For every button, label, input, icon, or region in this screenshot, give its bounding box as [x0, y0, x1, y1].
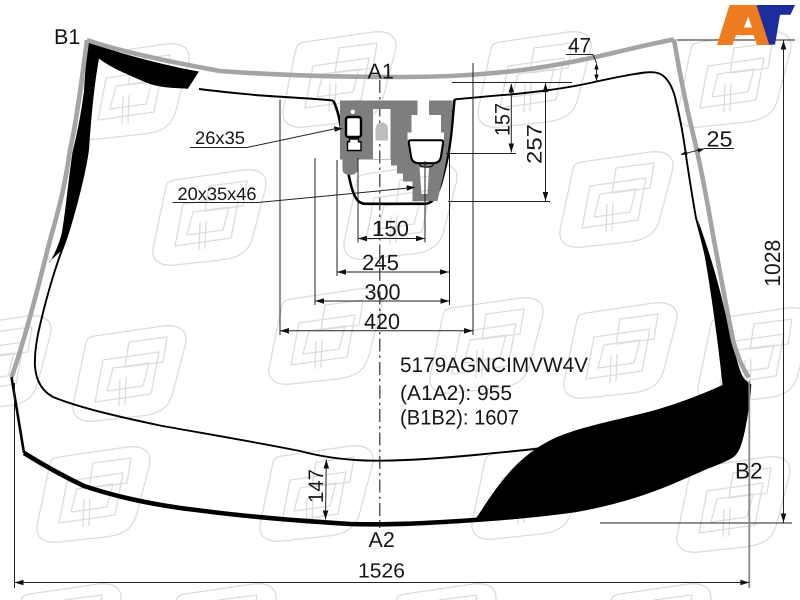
- svg-text:25: 25: [707, 127, 733, 152]
- svg-text:147: 147: [305, 469, 328, 503]
- svg-text:300: 300: [365, 280, 401, 305]
- svg-text:5179AGNCIMVW4V: 5179AGNCIMVW4V: [400, 354, 588, 377]
- svg-text:20x35x46: 20x35x46: [178, 184, 257, 204]
- svg-text:B2: B2: [735, 459, 763, 484]
- svg-text:257: 257: [524, 124, 547, 164]
- svg-text:26x35: 26x35: [195, 128, 245, 148]
- svg-text:1526: 1526: [358, 560, 405, 583]
- svg-text:A2: A2: [369, 528, 395, 552]
- svg-text:150: 150: [372, 216, 409, 241]
- svg-text:1028: 1028: [760, 240, 785, 287]
- svg-text:157: 157: [492, 103, 515, 136]
- svg-text:245: 245: [362, 250, 399, 275]
- svg-text:47: 47: [568, 35, 591, 58]
- svg-text:B1: B1: [54, 25, 80, 49]
- svg-text:A1: A1: [368, 60, 394, 84]
- svg-text:420: 420: [364, 309, 400, 334]
- svg-text:(B1B2): 1607: (B1B2): 1607: [400, 407, 519, 430]
- svg-text:(A1A2): 955: (A1A2): 955: [400, 382, 512, 405]
